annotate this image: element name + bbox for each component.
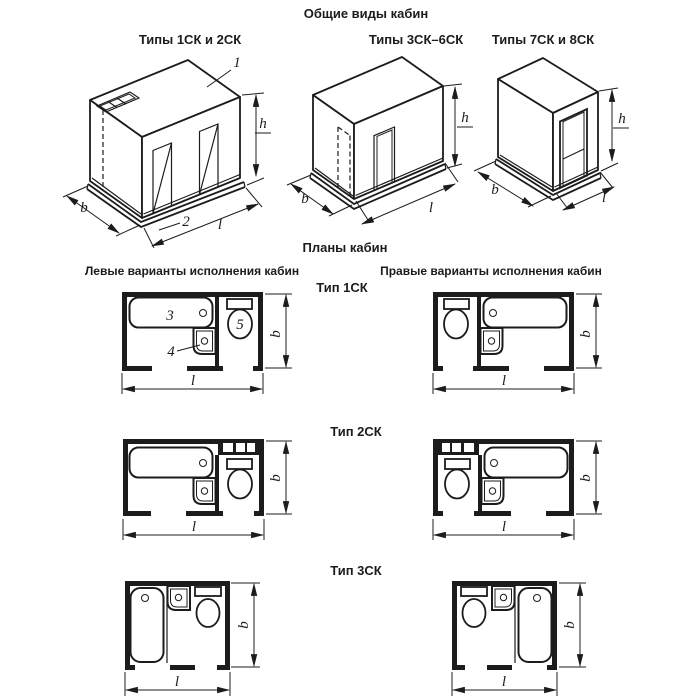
view-types-7sk-8sk: Типы 7СК и 8СК b bbox=[474, 32, 629, 210]
cabin-box bbox=[498, 58, 598, 191]
svg-text:l: l bbox=[218, 217, 222, 233]
dim-l-right: l bbox=[433, 519, 574, 540]
callout-floor-panel: 2 bbox=[159, 214, 190, 230]
svg-text:b: b bbox=[578, 330, 594, 338]
view-label: Типы 3СК–6СК bbox=[369, 32, 463, 47]
row-label: Тип 1СК bbox=[316, 280, 368, 295]
diagram-page: Общие виды кабин Типы 1СК и 2СК bbox=[0, 0, 700, 700]
dim-b-right: b bbox=[576, 294, 602, 368]
callout-bath: 3 bbox=[165, 308, 174, 324]
plan-row-2sk: Тип 2СК bbox=[123, 424, 602, 540]
dim-l-left: l bbox=[125, 672, 230, 696]
svg-text:1: 1 bbox=[233, 55, 241, 71]
washbasin bbox=[194, 328, 216, 354]
bathtub bbox=[131, 588, 164, 662]
dim-height-h: h bbox=[444, 84, 473, 168]
plan-row-1sk: Тип 1СК bbox=[122, 280, 602, 394]
plan-1sk-right-shapes bbox=[433, 292, 574, 371]
dim-b-left: b bbox=[265, 294, 292, 368]
svg-text:l: l bbox=[502, 373, 506, 389]
dim-l-left: l bbox=[122, 373, 263, 394]
view-label: Типы 1СК и 2СК bbox=[139, 32, 241, 47]
svg-text:h: h bbox=[259, 116, 267, 132]
svg-text:l: l bbox=[191, 373, 195, 389]
section-title-views: Общие виды кабин bbox=[304, 6, 429, 21]
dim-l-left: l bbox=[123, 519, 264, 540]
svg-text:2: 2 bbox=[182, 214, 190, 230]
gost-cabin-diagram: Общие виды кабин Типы 1СК и 2СК bbox=[0, 0, 700, 700]
dim-height-h: h bbox=[242, 93, 271, 185]
view-types-1sk-2sk: Типы 1СК и 2СК bbox=[63, 32, 271, 248]
svg-text:l: l bbox=[502, 674, 506, 690]
ventilation-block bbox=[218, 439, 264, 455]
svg-text:l: l bbox=[502, 519, 506, 535]
dim-l-right: l bbox=[452, 672, 557, 696]
dim-b-right: b bbox=[576, 441, 602, 514]
toilet bbox=[195, 587, 221, 627]
svg-text:b: b bbox=[80, 200, 88, 216]
callout-toilet: 5 bbox=[236, 317, 244, 333]
plan-3sk-right-shapes bbox=[452, 581, 557, 670]
plan-2sk-right-shapes bbox=[433, 439, 574, 516]
dim-height-h: h bbox=[599, 88, 629, 171]
column-header-right-variants: Правые варианты исполнения кабин bbox=[380, 264, 602, 278]
row-label: Тип 2СК bbox=[330, 424, 382, 439]
svg-text:b: b bbox=[236, 621, 252, 629]
svg-text:b: b bbox=[268, 330, 284, 338]
column-header-left-variants: Левые варианты исполнения кабин bbox=[85, 264, 299, 278]
bathtub bbox=[130, 448, 213, 478]
row-label: Тип 3СК bbox=[330, 563, 382, 578]
section-plans: Планы кабин Левые варианты исполнения ка… bbox=[85, 240, 602, 696]
svg-text:b: b bbox=[268, 474, 284, 482]
svg-text:b: b bbox=[578, 474, 594, 482]
svg-text:l: l bbox=[602, 190, 606, 206]
dim-b-left: b bbox=[231, 583, 260, 667]
washbasin bbox=[194, 478, 216, 504]
svg-text:h: h bbox=[618, 111, 626, 127]
svg-text:l: l bbox=[175, 674, 179, 690]
section-title-plans: Планы кабин bbox=[302, 240, 387, 255]
view-types-3sk-6sk: Типы 3СК–6СК b bbox=[287, 32, 473, 224]
toilet bbox=[227, 459, 252, 499]
svg-text:h: h bbox=[461, 110, 469, 126]
view-label: Типы 7СК и 8СК bbox=[492, 32, 594, 47]
dim-l-right: l bbox=[433, 373, 574, 394]
svg-text:l: l bbox=[192, 519, 196, 535]
plan-2sk-left-shapes bbox=[123, 439, 264, 516]
callout-washbasin: 4 bbox=[167, 344, 175, 360]
svg-text:b: b bbox=[562, 621, 578, 629]
section-general-views: Общие виды кабин Типы 1СК и 2СК bbox=[63, 6, 629, 248]
dim-b-right: b bbox=[559, 583, 586, 667]
cabin-box bbox=[313, 57, 443, 199]
plan-row-3sk: Тип 3СК bbox=[125, 563, 586, 696]
svg-text:b: b bbox=[491, 182, 499, 198]
svg-text:b: b bbox=[301, 191, 309, 207]
svg-text:l: l bbox=[429, 200, 433, 216]
washbasin bbox=[168, 586, 191, 610]
plan-3sk-left-shapes bbox=[125, 581, 230, 670]
dim-b-left: b bbox=[266, 441, 292, 514]
